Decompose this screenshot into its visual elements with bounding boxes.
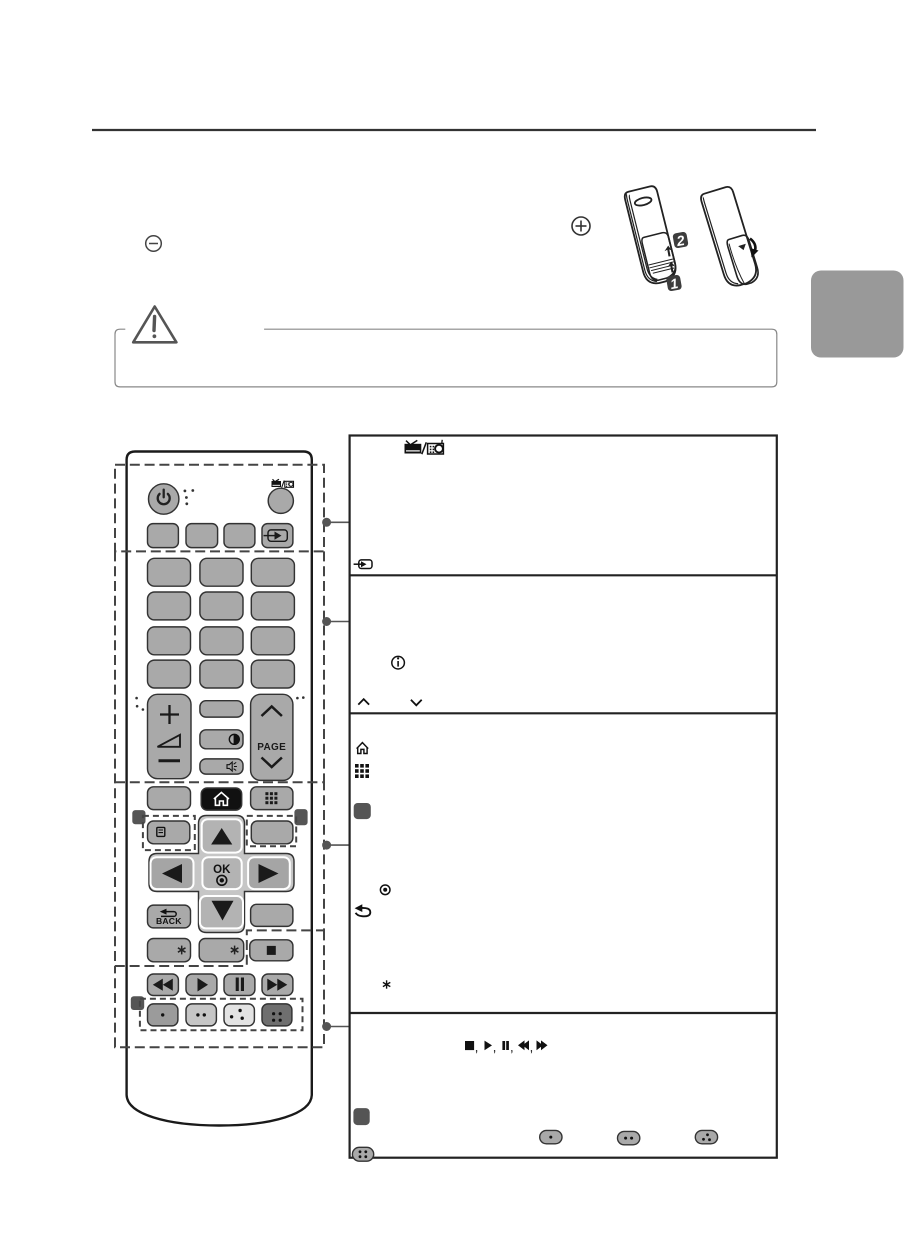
svg-text:BACK: BACK [156, 916, 182, 926]
svg-text:,: , [475, 1040, 479, 1055]
svg-text:OK: OK [213, 864, 231, 876]
svg-text:PAGE: PAGE [257, 742, 286, 753]
svg-text:,: , [493, 1040, 497, 1055]
svg-text:,: , [510, 1040, 514, 1055]
svg-text:,: , [530, 1040, 534, 1055]
